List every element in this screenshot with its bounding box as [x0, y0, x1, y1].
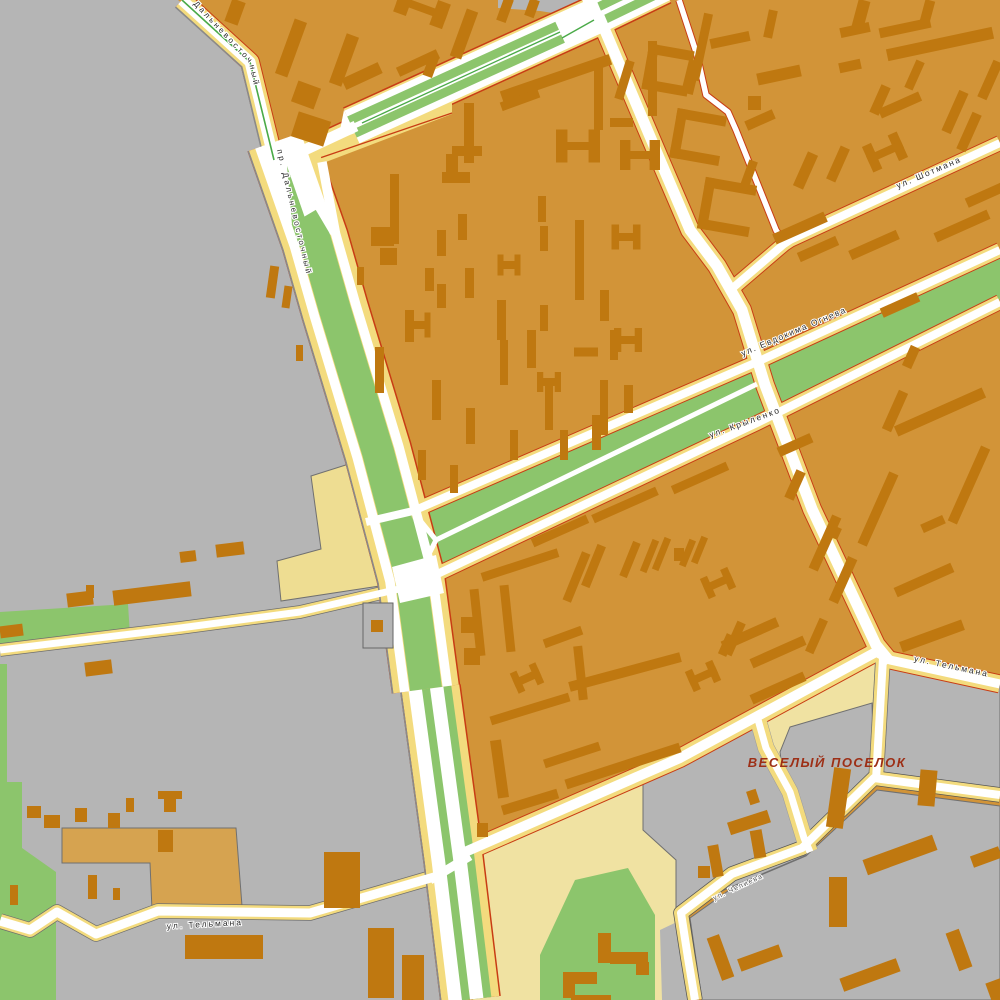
svg-text:ВЕСЕЛЫЙ ПОСЕЛОК: ВЕСЕЛЫЙ ПОСЕЛОК	[748, 754, 906, 770]
